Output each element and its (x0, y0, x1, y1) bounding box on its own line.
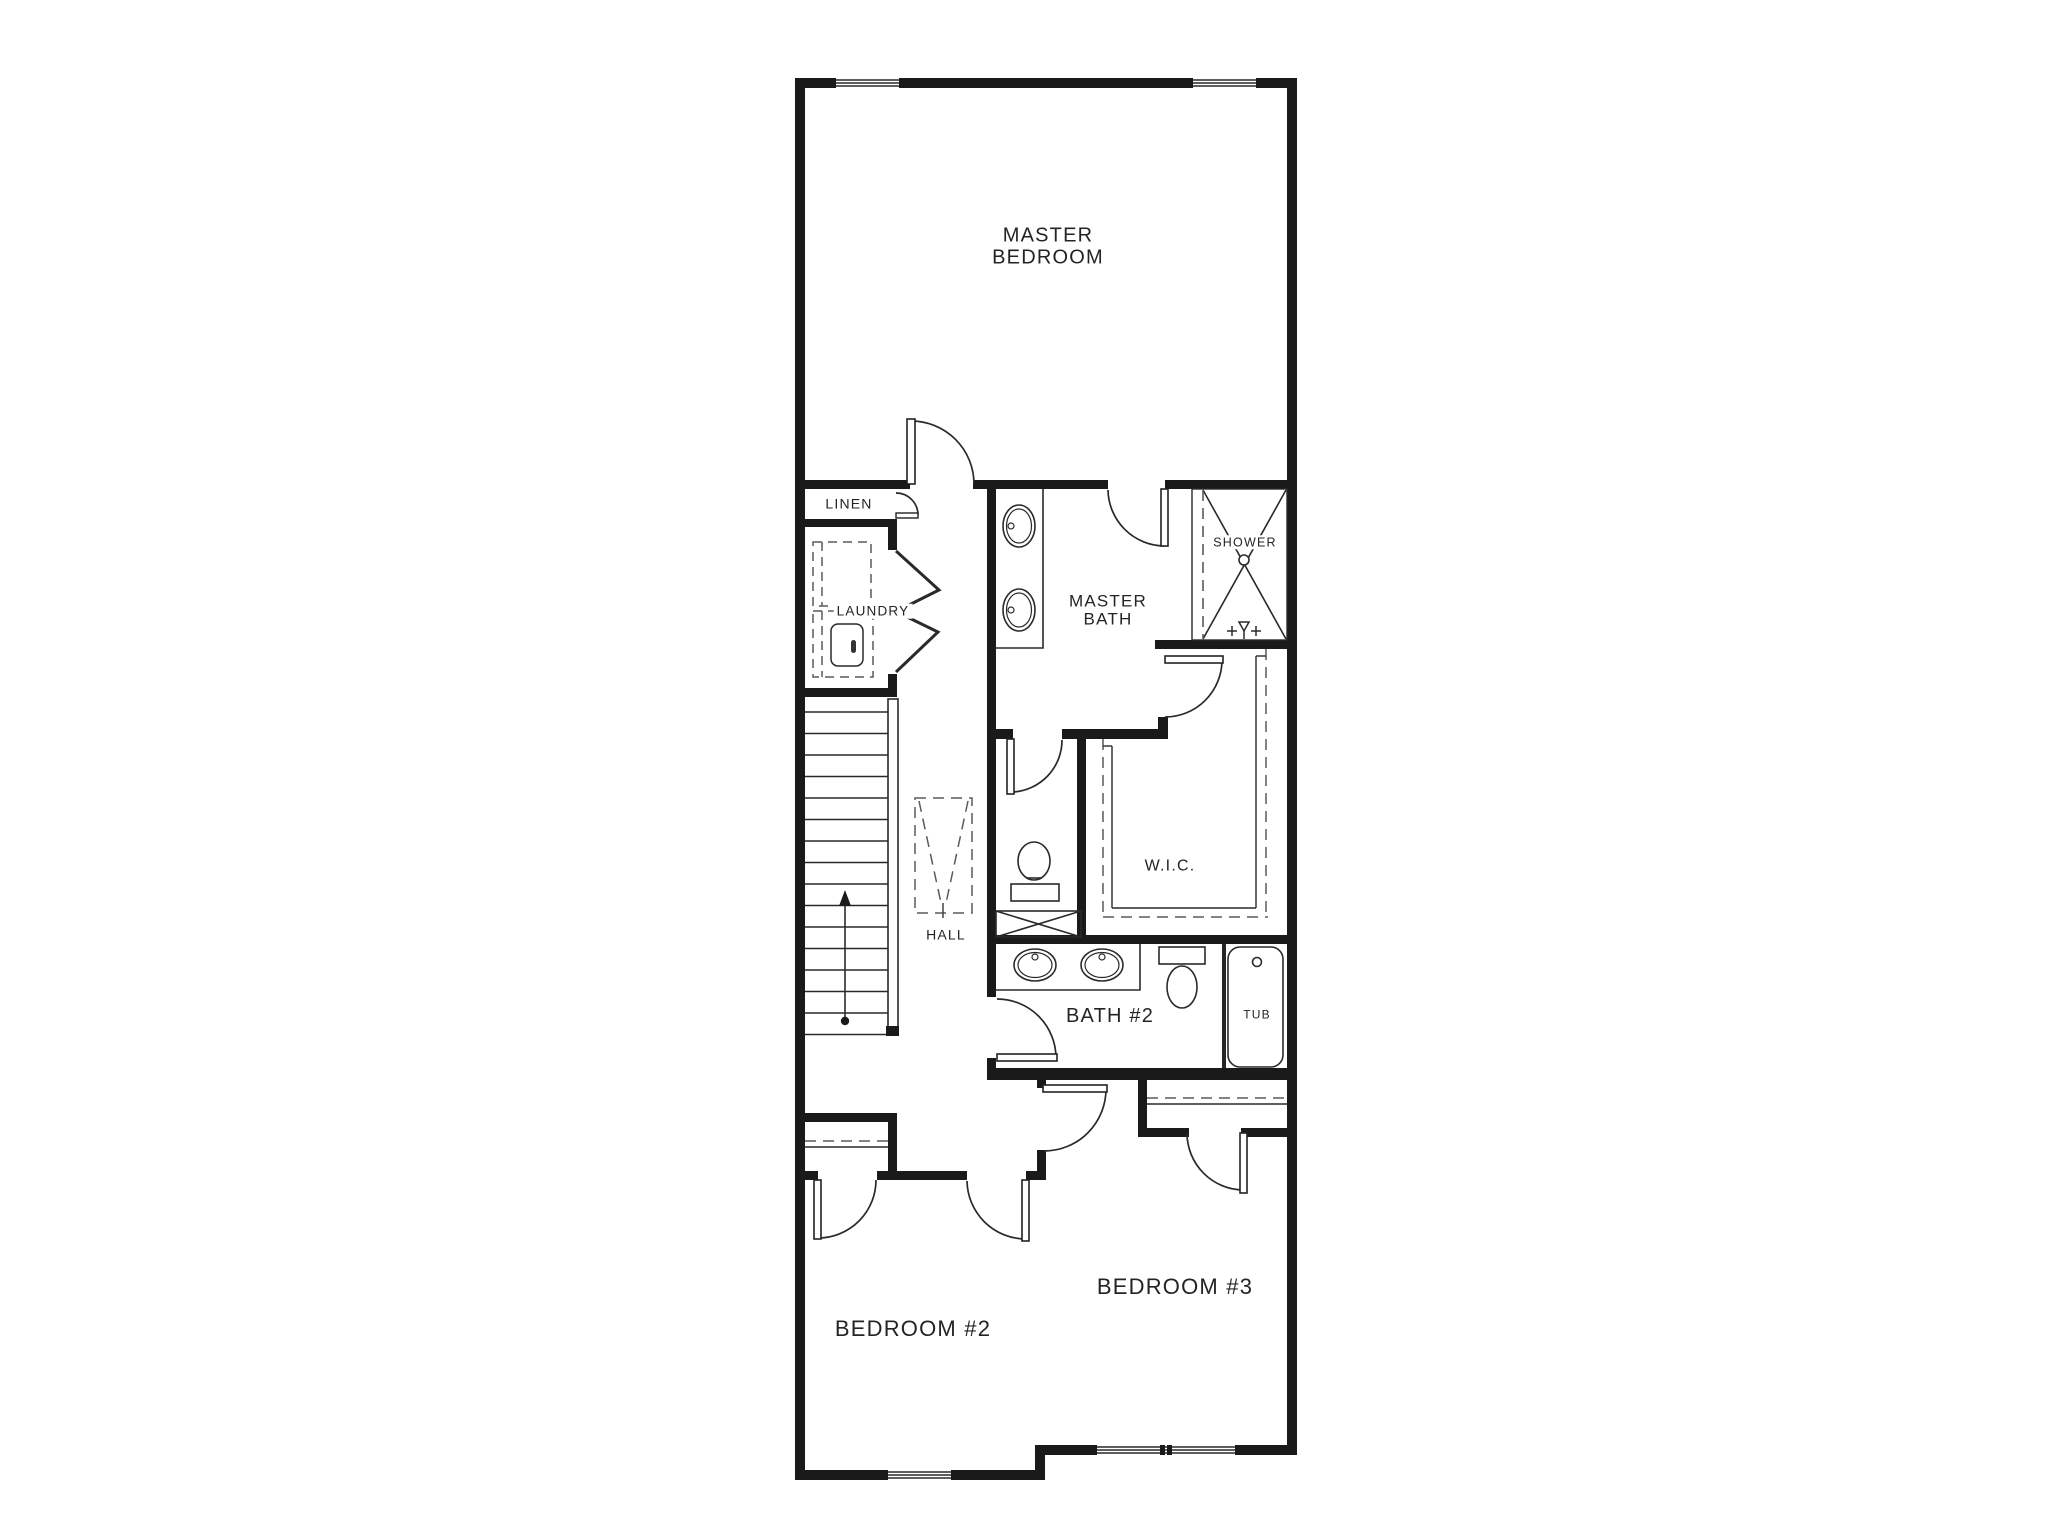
room-label-master-bath: MASTER BATH (1069, 593, 1147, 630)
floor-plan-canvas: MASTER BEDROOM LINEN LAUNDRY MASTER BATH… (0, 0, 2048, 1536)
bedroom2-closet-shelf (805, 1141, 888, 1147)
interior-walls (795, 480, 1297, 1180)
room-label-bedroom3: BEDROOM #3 (1097, 1275, 1253, 1299)
room-label-laundry: LAUNDRY (834, 605, 913, 620)
bedroom3-closet-shelf (1147, 1098, 1287, 1104)
bedroom2-closet-door (814, 1180, 876, 1239)
master-bath-door (1108, 489, 1168, 546)
tub-drain-icon (1253, 958, 1262, 967)
window-master-bedroom-right (1186, 78, 1263, 88)
window-master-bedroom-left (829, 78, 906, 88)
room-label-wic: W.I.C. (1145, 857, 1196, 874)
master-bath-label-line1: MASTER (1069, 593, 1147, 611)
room-label-hall: HALL (923, 927, 969, 942)
bath2-door (997, 999, 1057, 1061)
fixtures (813, 489, 1287, 1067)
stair-railing (888, 699, 898, 1029)
attic-access-icon (915, 798, 972, 918)
bedroom3-closet-door (1187, 1133, 1247, 1193)
master-toilet-door (1007, 739, 1062, 794)
linen-door (896, 493, 918, 518)
room-label-tub: TUB (1243, 1009, 1271, 1022)
bedroom3-door (1043, 1085, 1107, 1151)
master-toilet (1011, 842, 1059, 901)
room-label-linen: LINEN (825, 496, 872, 511)
shower (1192, 489, 1287, 640)
master-sink-2 (1003, 589, 1035, 631)
master-bedroom-door (907, 419, 974, 484)
stair-treads (805, 712, 888, 1035)
washer-handle (851, 640, 856, 653)
washer-door (831, 624, 863, 666)
hall-cabinet (996, 911, 1081, 937)
bath2-toilet (1159, 947, 1205, 1008)
master-bedroom-label-line2: BEDROOM (992, 247, 1104, 269)
bath2-sink-2 (1081, 949, 1123, 981)
shower-valve-icon (1227, 622, 1261, 639)
stair-newel (886, 1026, 899, 1036)
shower-drain-icon (1239, 555, 1249, 565)
room-label-bath2: BATH #2 (1066, 1006, 1154, 1028)
room-label-bedroom2: BEDROOM #2 (835, 1317, 991, 1341)
master-bath-label-line2: BATH (1069, 611, 1147, 629)
exterior-walls (795, 78, 1297, 1480)
window-bedroom3 (1090, 1445, 1242, 1455)
master-vanity (996, 489, 1043, 648)
master-bedroom-label-line1: MASTER (992, 225, 1104, 247)
master-sink-1 (1003, 505, 1035, 547)
bath2-vanity (996, 944, 1140, 990)
room-label-shower: SHOWER (1210, 536, 1279, 550)
stairs-up-arrow (839, 890, 851, 1025)
window-bedroom2 (881, 1470, 958, 1480)
room-label-master-bedroom: MASTER BEDROOM (992, 225, 1104, 268)
stairs (805, 699, 899, 1036)
bath2-sink-1 (1014, 949, 1056, 981)
wic-door (1165, 656, 1223, 717)
wic-shelving (1103, 649, 1268, 917)
bedroom2-door (967, 1180, 1029, 1241)
